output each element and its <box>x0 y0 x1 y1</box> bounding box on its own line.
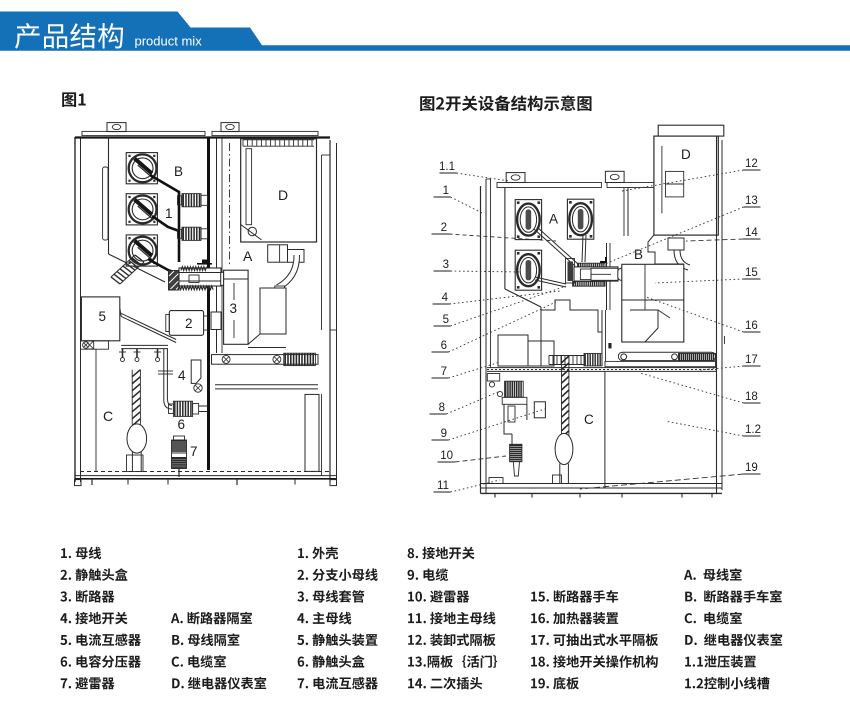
svg-text:D: D <box>278 187 288 203</box>
svg-text:6: 6 <box>441 340 447 352</box>
svg-text:1.2: 1.2 <box>745 424 761 436</box>
svg-text:1: 1 <box>165 206 173 221</box>
svg-text:D: D <box>681 147 691 162</box>
svg-text:C: C <box>103 408 113 424</box>
svg-text:13: 13 <box>745 195 758 207</box>
svg-text:18: 18 <box>745 391 758 403</box>
svg-text:product mix: product mix <box>135 34 203 49</box>
svg-text:3: 3 <box>443 259 449 271</box>
svg-text:9: 9 <box>441 428 447 440</box>
svg-text:8: 8 <box>439 402 445 414</box>
svg-text:B: B <box>174 164 183 179</box>
svg-text:7: 7 <box>441 366 447 378</box>
svg-text:17: 17 <box>745 354 758 366</box>
svg-text:16: 16 <box>745 320 758 332</box>
svg-text:7: 7 <box>190 444 198 459</box>
svg-text:4: 4 <box>178 368 186 383</box>
svg-text:5: 5 <box>99 309 107 324</box>
svg-text:A: A <box>243 248 253 264</box>
svg-text:19: 19 <box>745 462 758 474</box>
svg-text:14: 14 <box>745 227 758 239</box>
svg-text:1.1: 1.1 <box>439 161 455 173</box>
svg-text:11: 11 <box>437 480 449 492</box>
svg-text:4: 4 <box>442 292 449 304</box>
svg-text:C: C <box>584 412 594 427</box>
svg-text:12: 12 <box>745 158 758 170</box>
svg-text:1: 1 <box>443 185 449 197</box>
svg-text:3: 3 <box>230 301 238 316</box>
svg-text:10: 10 <box>440 450 453 462</box>
svg-text:2: 2 <box>185 316 193 331</box>
svg-text:5: 5 <box>443 314 449 326</box>
svg-text:15: 15 <box>745 267 758 279</box>
svg-text:2: 2 <box>441 222 447 234</box>
svg-text:6: 6 <box>178 417 186 432</box>
svg-text:A: A <box>549 212 558 227</box>
